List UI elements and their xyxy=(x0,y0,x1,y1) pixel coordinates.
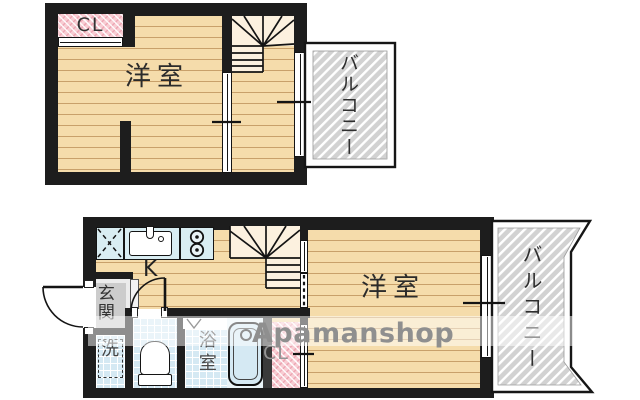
faucet-icon xyxy=(146,226,154,239)
lower-room-label: 洋室 xyxy=(343,275,443,302)
entrance-door xyxy=(43,287,83,327)
upper-wall-stub xyxy=(120,121,131,172)
kitchen-label: K xyxy=(143,258,157,281)
lower-room-floor xyxy=(308,230,480,388)
refrigerator-space xyxy=(96,227,124,260)
upper-room-label: 洋室 xyxy=(107,64,207,91)
folding-door xyxy=(300,273,308,308)
entrance-top-wall xyxy=(96,272,133,279)
registered-mark-icon xyxy=(240,329,252,341)
watermark: Apamanshop xyxy=(252,318,454,349)
upper-balcony-window xyxy=(294,52,307,157)
upper-closet-label: CL xyxy=(58,14,123,37)
stair-window xyxy=(300,240,308,273)
upper-closet-wall xyxy=(123,14,135,47)
stove-counter xyxy=(180,227,214,260)
upper-balcony-label: バルコニー xyxy=(337,53,357,165)
drain-icon xyxy=(158,236,164,242)
door-jamb xyxy=(84,280,94,288)
floor-plan-image: CL 洋室 バルコニー K 玄関 洗 浴室 洋室 CL バルコニー Apaman… xyxy=(0,0,640,400)
upper-partition-wall xyxy=(222,16,232,72)
toilet-tank-icon xyxy=(138,374,172,386)
toilet-icon xyxy=(140,341,170,375)
upper-closet-door xyxy=(58,37,123,47)
upper-partition-sliding-door xyxy=(222,72,232,173)
stair-column-wall xyxy=(300,230,308,240)
